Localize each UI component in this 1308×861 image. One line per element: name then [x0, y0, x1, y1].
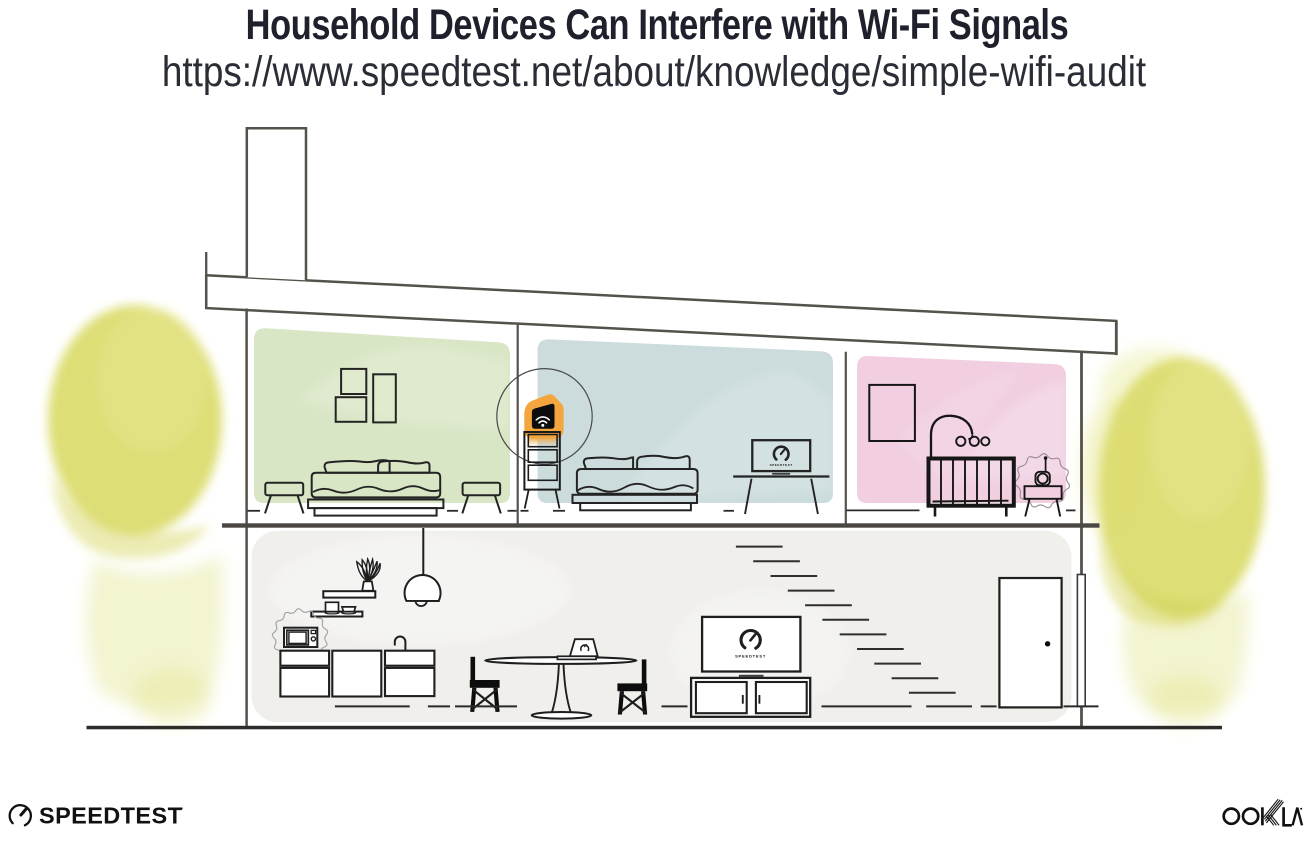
svg-text:SPEEDTEST: SPEEDTEST [735, 654, 766, 659]
svg-text:SPEEDTEST: SPEEDTEST [39, 803, 183, 829]
svg-text:SPEEDTEST: SPEEDTEST [770, 463, 793, 467]
